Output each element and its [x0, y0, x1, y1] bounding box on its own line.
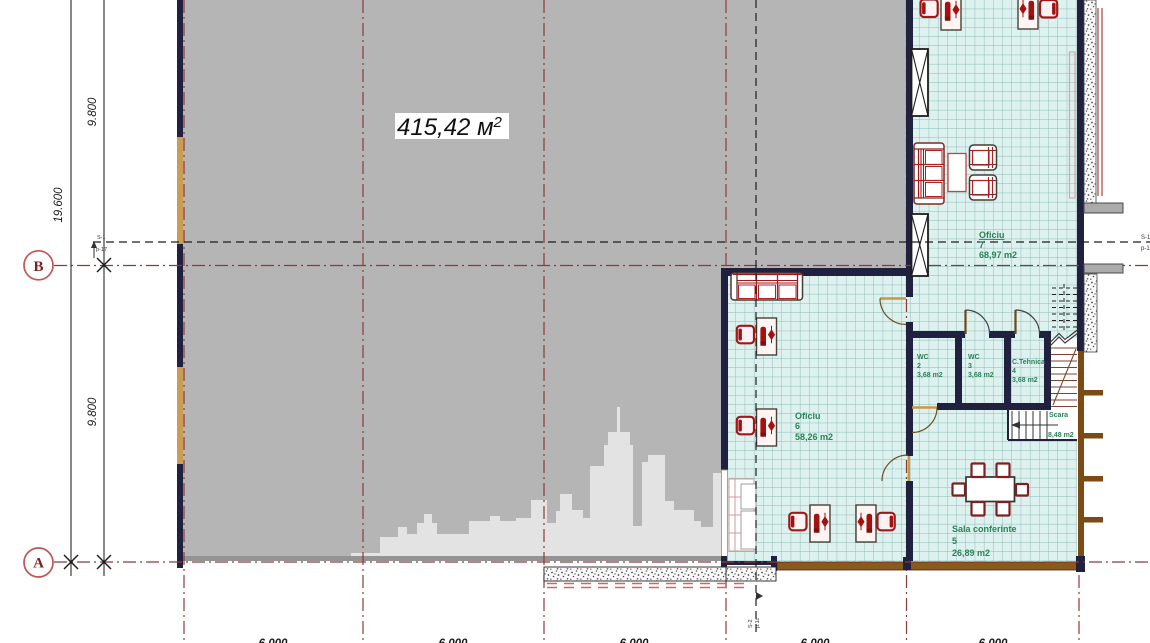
svg-text:B: B — [33, 259, 43, 275]
svg-text:p.1c: p.1c — [755, 617, 761, 628]
svg-text:6.000: 6.000 — [620, 638, 649, 643]
svg-text:19.600: 19.600 — [53, 187, 65, 223]
svg-text:S-1: S-1 — [1141, 235, 1150, 241]
svg-text:6.000: 6.000 — [801, 638, 830, 643]
svg-text:6.000: 6.000 — [259, 638, 288, 643]
svg-text:68,97 m2: 68,97 m2 — [979, 250, 1017, 260]
svg-text:S-1: S-1 — [97, 235, 106, 241]
svg-text:4: 4 — [1012, 368, 1016, 375]
svg-text:26,89 m2: 26,89 m2 — [952, 548, 990, 558]
svg-text:3,68 m2: 3,68 m2 — [1012, 377, 1038, 384]
svg-text:6.000: 6.000 — [439, 638, 468, 643]
svg-text:6.000: 6.000 — [979, 638, 1008, 643]
svg-text:2: 2 — [917, 363, 921, 370]
svg-text:3: 3 — [968, 363, 972, 370]
svg-text:p-17: p-17 — [1141, 246, 1150, 252]
svg-text:p-17: p-17 — [96, 247, 107, 253]
svg-text:Scara: Scara — [1049, 412, 1068, 419]
svg-text:WC: WC — [917, 354, 929, 361]
svg-text:S-2: S-2 — [748, 619, 754, 628]
svg-text:8,48 m2: 8,48 m2 — [1048, 432, 1074, 439]
svg-text:A: A — [33, 556, 44, 572]
svg-text:Oficiu: Oficiu — [979, 230, 1005, 240]
svg-text:5: 5 — [952, 536, 957, 546]
svg-text:415,42 м2: 415,42 м2 — [397, 114, 503, 141]
svg-text:3,68 m2: 3,68 m2 — [917, 372, 943, 379]
svg-text:Oficiu: Oficiu — [795, 411, 821, 421]
svg-text:3,68 m2: 3,68 m2 — [968, 372, 994, 379]
svg-text:58,26 m2: 58,26 m2 — [795, 432, 833, 442]
svg-text:Sala conferinte: Sala conferinte — [952, 524, 1017, 534]
svg-text:WC: WC — [968, 354, 980, 361]
svg-text:9.800: 9.800 — [87, 397, 99, 426]
svg-text:9.800: 9.800 — [87, 97, 99, 126]
svg-text:C.Tehnica: C.Tehnica — [1012, 359, 1045, 366]
svg-text:7: 7 — [979, 240, 984, 250]
svg-text:6: 6 — [795, 421, 800, 431]
